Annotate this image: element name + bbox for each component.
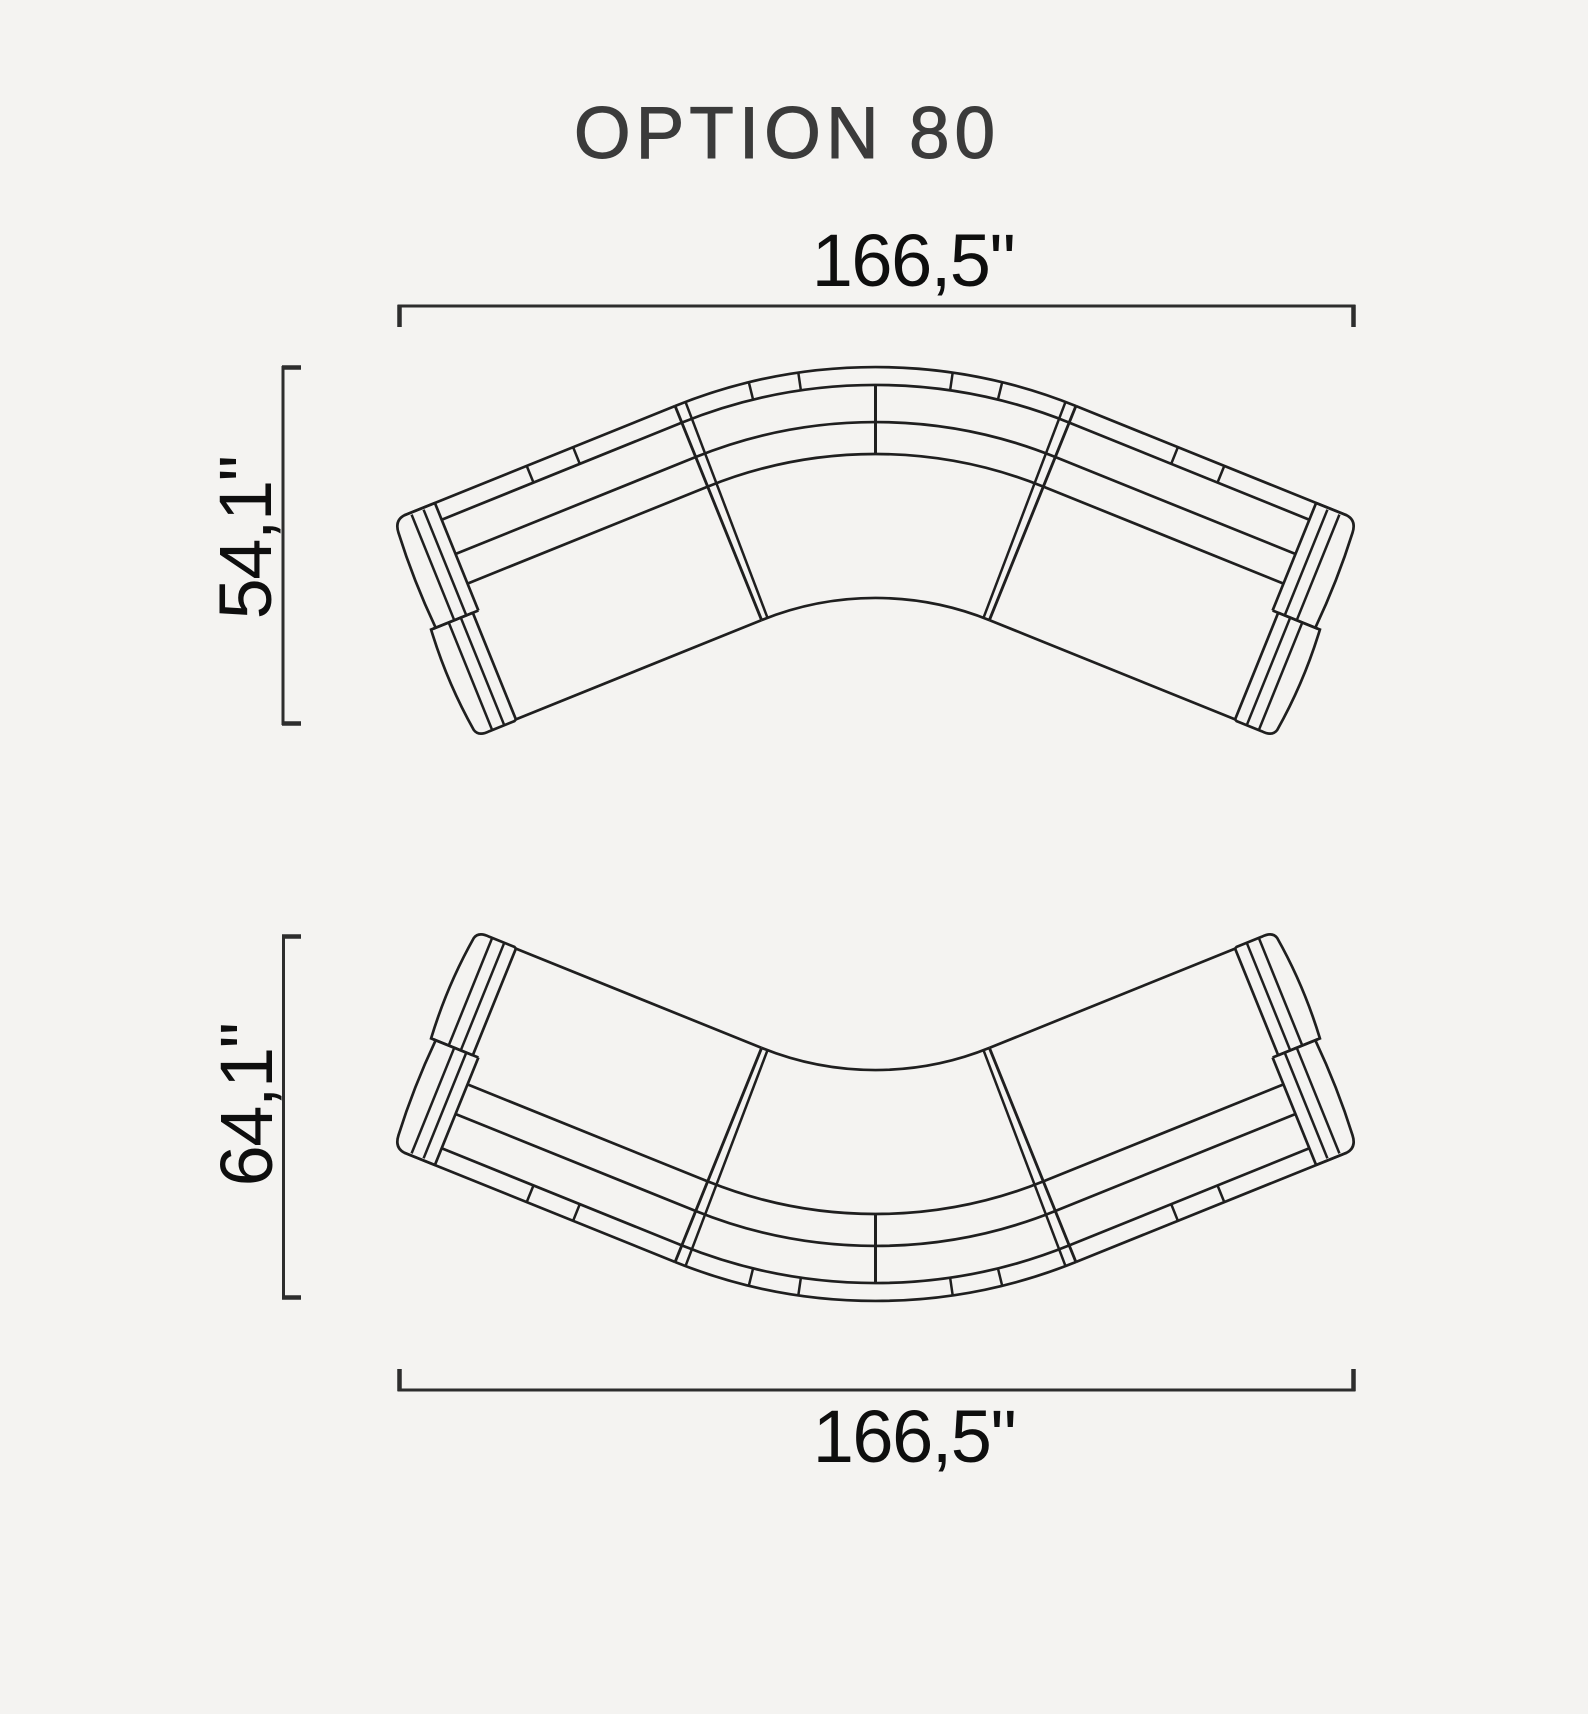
svg-text:166,5": 166,5" xyxy=(813,1395,1015,1478)
svg-text:64,1": 64,1" xyxy=(205,1024,288,1187)
svg-text:OPTION 80: OPTION 80 xyxy=(574,93,1000,174)
svg-text:54,1": 54,1" xyxy=(204,457,287,620)
svg-text:166,5": 166,5" xyxy=(812,219,1014,302)
